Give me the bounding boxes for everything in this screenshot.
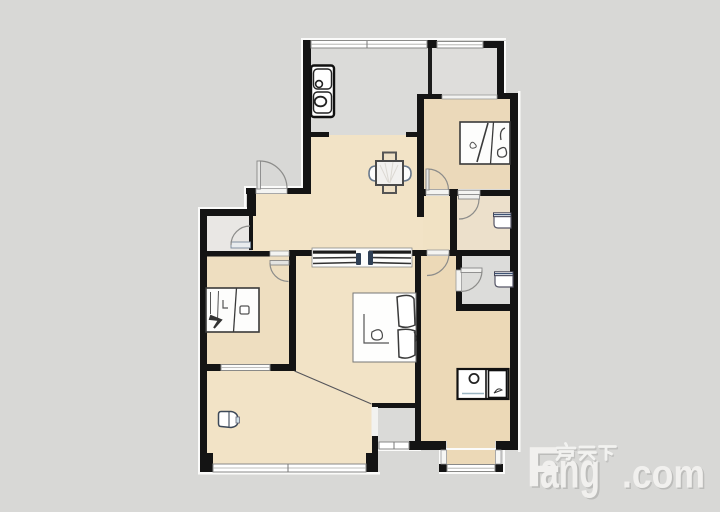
svg-text:.com: .com bbox=[622, 453, 705, 497]
